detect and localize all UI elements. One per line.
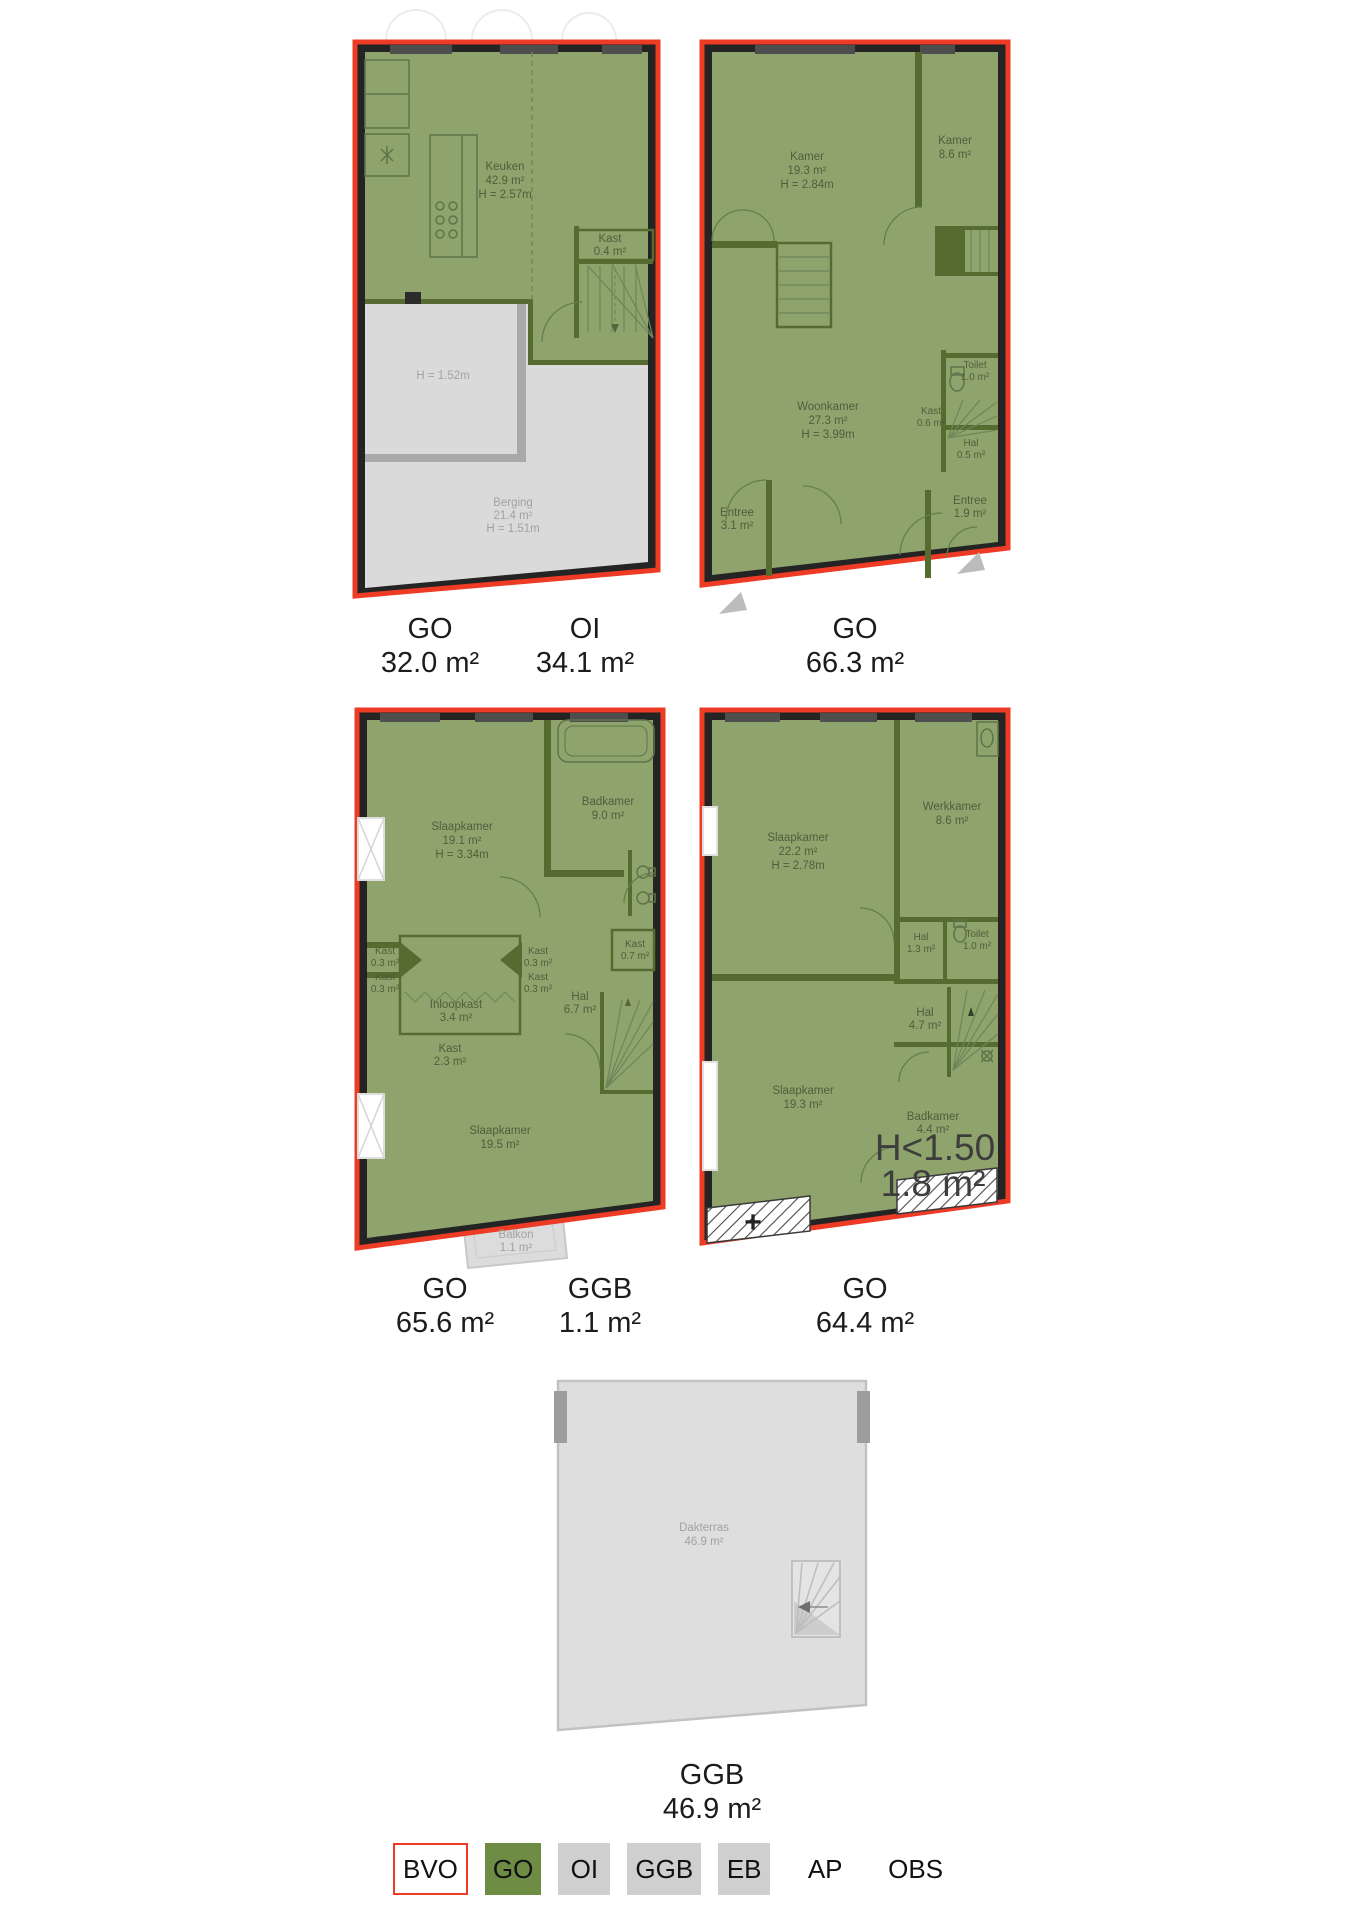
- low-height-annotation: 1.8 m²: [881, 1163, 986, 1204]
- legend-item-oi: OI: [558, 1843, 610, 1895]
- area-label-go-1: GO 32.0 m²: [350, 612, 510, 680]
- room-area: 19.3 m²: [788, 165, 827, 177]
- room-name: Entree: [720, 507, 754, 519]
- room-area: 0.4 m²: [594, 246, 627, 258]
- faint-door-arcs: [386, 10, 616, 40]
- stairs: [792, 1561, 840, 1637]
- room-area: 6.7 m²: [564, 1004, 597, 1016]
- roof-terrace-plan: Dakterras 46.9 m²: [550, 1375, 875, 1755]
- floorplan-sheet: Keuken 42.9 m² H = 2.57m Kast 0.4 m² H =…: [0, 0, 1358, 1920]
- room-name: Hal: [571, 991, 588, 1003]
- room-area: 19.3 m²: [784, 1099, 823, 1111]
- room-height: H = 3.34m: [435, 849, 488, 861]
- room-area: 9.0 m²: [592, 810, 625, 822]
- room-name: Entree: [953, 495, 987, 507]
- room-area: 19.1 m²: [443, 835, 482, 847]
- room-area: 3.1 m²: [721, 520, 754, 532]
- low-area-wall: [517, 304, 526, 462]
- low-height-annotation: H<1.50: [875, 1127, 995, 1168]
- area-value: 32.0 m²: [350, 646, 510, 680]
- legend-label: OBS: [888, 1854, 943, 1885]
- room-area: 4.7 m²: [909, 1020, 942, 1032]
- room-name: Slaapkamer: [767, 832, 829, 844]
- room-name: Kast: [598, 233, 622, 245]
- room-height: H = 3.99m: [801, 429, 854, 441]
- room-name: Toilet: [965, 929, 989, 940]
- room-name: Kamer: [938, 135, 972, 147]
- room-area: 22.2 m²: [779, 846, 818, 858]
- room-height: H = 2.78m: [771, 860, 824, 872]
- area-label-go-2: GO 66.3 m²: [775, 612, 935, 680]
- room-area: 27.3 m²: [809, 415, 848, 427]
- legend-label: EB: [727, 1854, 762, 1885]
- area-code: GGB: [520, 1272, 680, 1306]
- floor-plan-3: Slaapkamer 19.1 m² H = 3.34m Badkamer 9.…: [350, 702, 670, 1312]
- room-height: H = 2.84m: [780, 179, 833, 191]
- area-label-go-3: GO 65.6 m²: [365, 1272, 525, 1340]
- wall-tab: [857, 1391, 870, 1443]
- room-area: 1.1 m²: [500, 1242, 533, 1254]
- room-name: Kast: [921, 406, 941, 417]
- legend: BVO GO OI GGB EB AP OBS: [393, 1843, 951, 1895]
- legend-label: AP: [808, 1854, 843, 1885]
- room-area: 1.3 m²: [907, 944, 936, 955]
- plus-marker: +: [744, 1206, 762, 1239]
- room-area: 1.9 m²: [954, 508, 987, 520]
- area-code: GO: [775, 612, 935, 646]
- ggb-area: [558, 1381, 866, 1730]
- legend-label: OI: [571, 1854, 598, 1885]
- area-code: GGB: [632, 1758, 792, 1792]
- room-name: Hal: [916, 1007, 933, 1019]
- room-name: Keuken: [485, 161, 524, 173]
- room-name: Kast: [528, 946, 548, 957]
- room-area: 19.5 m²: [481, 1139, 520, 1151]
- floor-plan-2: Kamer 19.3 m² H = 2.84m Kamer 8.6 m² Woo…: [695, 34, 1015, 619]
- area-label-oi-1: OI 34.1 m²: [505, 612, 665, 680]
- room-area: 0.3 m²: [524, 984, 553, 995]
- area-label-ggb-3: GGB 1.1 m²: [520, 1272, 680, 1340]
- room-name: Kast: [375, 972, 395, 983]
- room-name: Inloopkast: [430, 999, 483, 1011]
- window: [703, 1062, 717, 1170]
- room-name: Badkamer: [907, 1111, 960, 1123]
- window: [358, 818, 384, 880]
- room-name: Toilet: [963, 360, 987, 371]
- floor-plan-4: + Slaapkamer 22.2 m² H = 2.78m Werkkamer…: [695, 702, 1015, 1262]
- room-area: 21.4 m²: [494, 510, 533, 522]
- area-code: GO: [365, 1272, 525, 1306]
- floor-plan-1: Keuken 42.9 m² H = 2.57m Kast 0.4 m² H =…: [350, 34, 666, 614]
- legend-item-eb: EB: [718, 1843, 770, 1895]
- room-name: Badkamer: [582, 796, 635, 808]
- room-area: 0.7 m²: [621, 951, 650, 962]
- area-label-ggb-5: GGB 46.9 m²: [632, 1758, 792, 1826]
- room-name: Slaapkamer: [772, 1085, 834, 1097]
- room-area: 0.6 m²: [917, 418, 946, 429]
- area-label-go-4: GO 64.4 m²: [785, 1272, 945, 1340]
- window: [358, 1094, 384, 1158]
- window: [703, 807, 717, 855]
- area-value: 34.1 m²: [505, 646, 665, 680]
- entrance-arrow: [719, 592, 747, 614]
- legend-item-go: GO: [485, 1843, 541, 1895]
- legend-label: GO: [493, 1854, 533, 1885]
- room-name: Kast: [625, 939, 645, 950]
- room-area: 8.6 m²: [939, 149, 972, 161]
- room-area: 46.9 m²: [685, 1536, 724, 1548]
- low-area-wall: [365, 454, 526, 462]
- room-name: Hal: [963, 438, 978, 449]
- legend-item-ggb: GGB: [627, 1843, 701, 1895]
- area-value: 64.4 m²: [785, 1306, 945, 1340]
- room-area: 2.3 m²: [434, 1056, 467, 1068]
- area-value: 46.9 m²: [632, 1792, 792, 1826]
- legend-item-bvo: BVO: [393, 1843, 468, 1895]
- room-name: Werkkamer: [923, 801, 982, 813]
- room-area: 3.4 m²: [440, 1012, 473, 1024]
- wall-tab: [554, 1391, 567, 1443]
- room-name: Dakterras: [679, 1522, 729, 1534]
- room-name: Slaapkamer: [469, 1125, 531, 1137]
- legend-label: GGB: [635, 1854, 693, 1885]
- room-area: 1.0 m²: [961, 372, 990, 383]
- room-name: Slaapkamer: [431, 821, 493, 833]
- room-name: Kast: [375, 946, 395, 957]
- room-area: 0.3 m²: [371, 958, 400, 969]
- area-value: 1.1 m²: [520, 1306, 680, 1340]
- area-code: GO: [350, 612, 510, 646]
- area-code: OI: [505, 612, 665, 646]
- room-name: Kast: [528, 972, 548, 983]
- room-name: Woonkamer: [797, 401, 859, 413]
- room-area: 8.6 m²: [936, 815, 969, 827]
- room-name: Kamer: [790, 151, 824, 163]
- room-name: Berging: [493, 497, 533, 509]
- room-name: Hal: [913, 932, 928, 943]
- legend-item-obs: OBS: [880, 1843, 951, 1895]
- legend-item-ap: AP: [799, 1843, 851, 1895]
- legend-label: BVO: [403, 1854, 458, 1885]
- room-area: 0.3 m²: [524, 958, 553, 969]
- room-area: 0.5 m²: [957, 450, 986, 461]
- room-height: H = 1.51m: [486, 523, 539, 535]
- room-height: H = 2.57m: [478, 189, 531, 201]
- area-value: 66.3 m²: [775, 646, 935, 680]
- room-area: 0.3 m²: [371, 984, 400, 995]
- area-value: 65.6 m²: [365, 1306, 525, 1340]
- room-height: H = 1.52m: [416, 370, 469, 382]
- room-area: 42.9 m²: [486, 175, 525, 187]
- room-name: Balkon: [498, 1229, 533, 1241]
- room-name: Kast: [438, 1043, 462, 1055]
- room-area: 1.0 m²: [963, 941, 992, 952]
- area-code: GO: [785, 1272, 945, 1306]
